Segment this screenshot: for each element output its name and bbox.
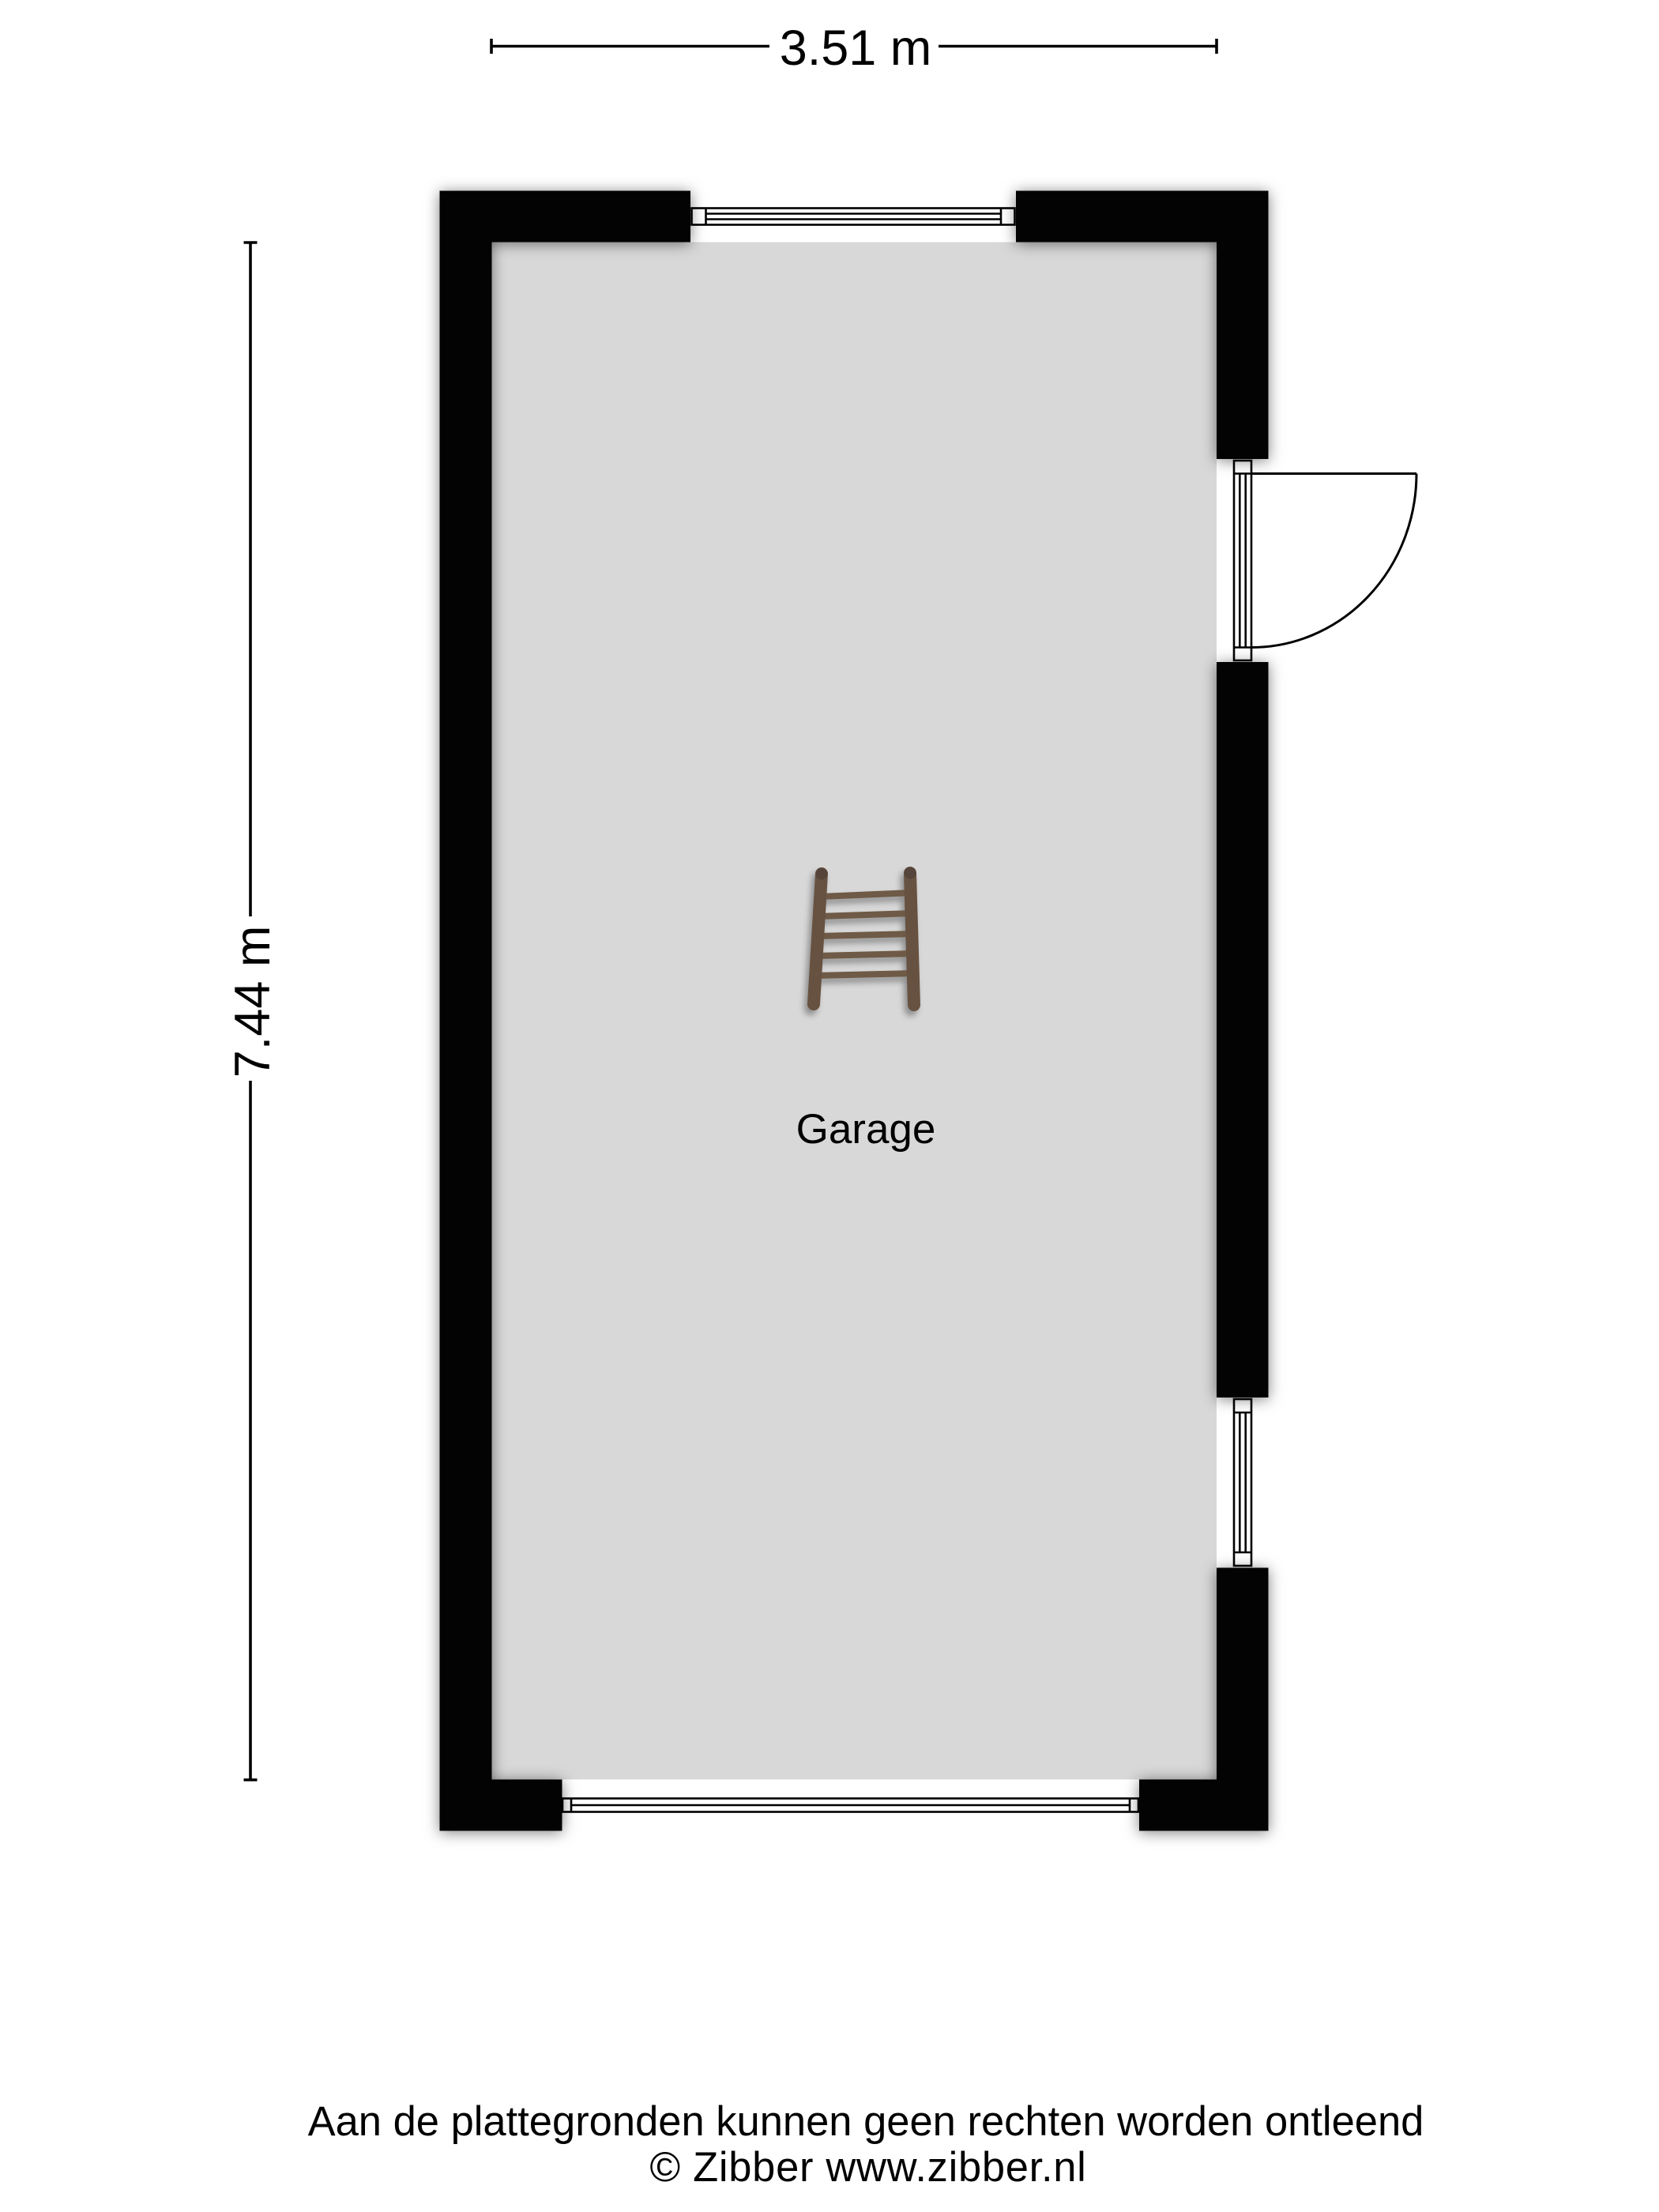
svg-text:© Zibber www.zibber.nl: © Zibber www.zibber.nl bbox=[649, 2144, 1086, 2191]
svg-text:7.44 m: 7.44 m bbox=[225, 926, 280, 1078]
svg-text:Aan de plattegronden kunnen ge: Aan de plattegronden kunnen geen rechten… bbox=[308, 2098, 1424, 2145]
svg-text:3.51 m: 3.51 m bbox=[780, 21, 932, 76]
svg-text:Garage: Garage bbox=[796, 1106, 936, 1153]
